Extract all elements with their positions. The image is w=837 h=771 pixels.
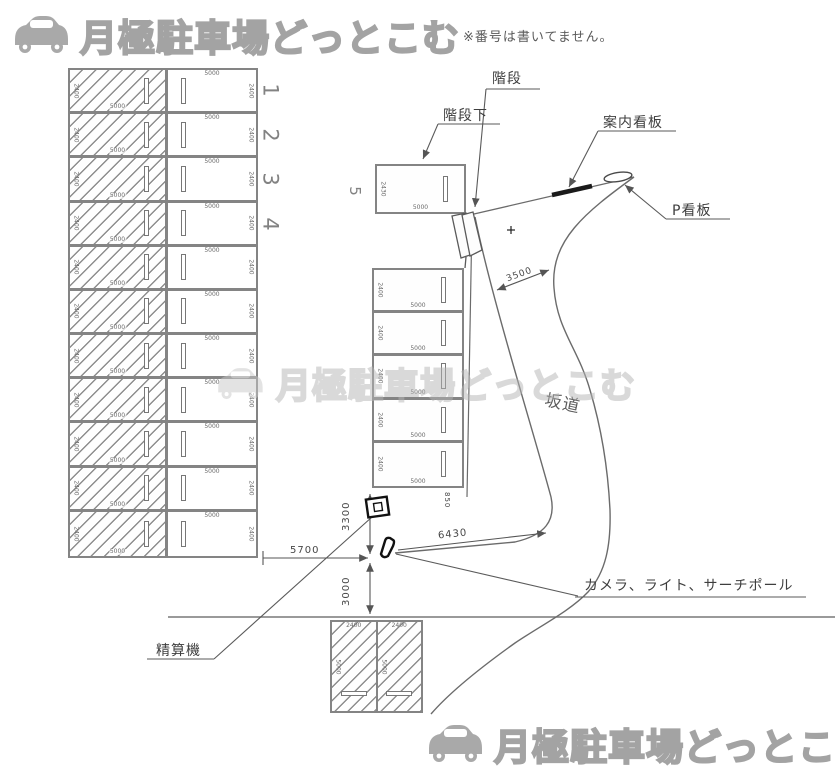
camera-leader: [396, 554, 578, 596]
label-camera-light-pole: カメラ、ライト、サーチポール: [584, 575, 793, 595]
parking-road-boundary: [467, 218, 472, 497]
parking-lot-diagram: 月極駐車場どっとこむ 月極駐車場どっとこむ 月極駐車場どっとこむ ※番号は書いて…: [0, 0, 837, 771]
dim-5700: 5700: [290, 545, 319, 556]
label-guide-sign: 案内看板: [603, 112, 663, 132]
site-logo-bottom: 月極駐車場どっとこむ: [424, 717, 837, 771]
p-sign-leader: [625, 185, 666, 219]
stairs-shape: [452, 212, 482, 268]
label-stairs: 階段: [492, 68, 522, 88]
cross-mark: [507, 226, 515, 234]
under-stairs-leader: [423, 124, 438, 159]
guide-sign-leader: [569, 131, 598, 187]
pay-machine-symbol: [366, 497, 389, 518]
dim-3000: 3000: [341, 577, 352, 606]
label-p-sign: P看板: [672, 200, 711, 220]
dim-850: 850: [443, 492, 451, 508]
car-icon: [10, 13, 72, 57]
site-logo-text: 月極駐車場どっとこむ: [494, 717, 837, 771]
label-pay-machine: 精算機: [156, 640, 201, 660]
label-under-stairs: 階段下: [443, 105, 488, 125]
guide-sign-mark: [552, 186, 592, 195]
dim-3300: 3300: [341, 502, 352, 531]
pole-symbol: [381, 538, 394, 557]
site-logo-text: 月極駐車場どっとこむ: [80, 8, 460, 62]
dim-6430-line: [398, 533, 546, 550]
car-icon: [424, 722, 486, 766]
linework-overlay: [0, 0, 837, 771]
site-logo-top: 月極駐車場どっとこむ: [10, 8, 460, 62]
